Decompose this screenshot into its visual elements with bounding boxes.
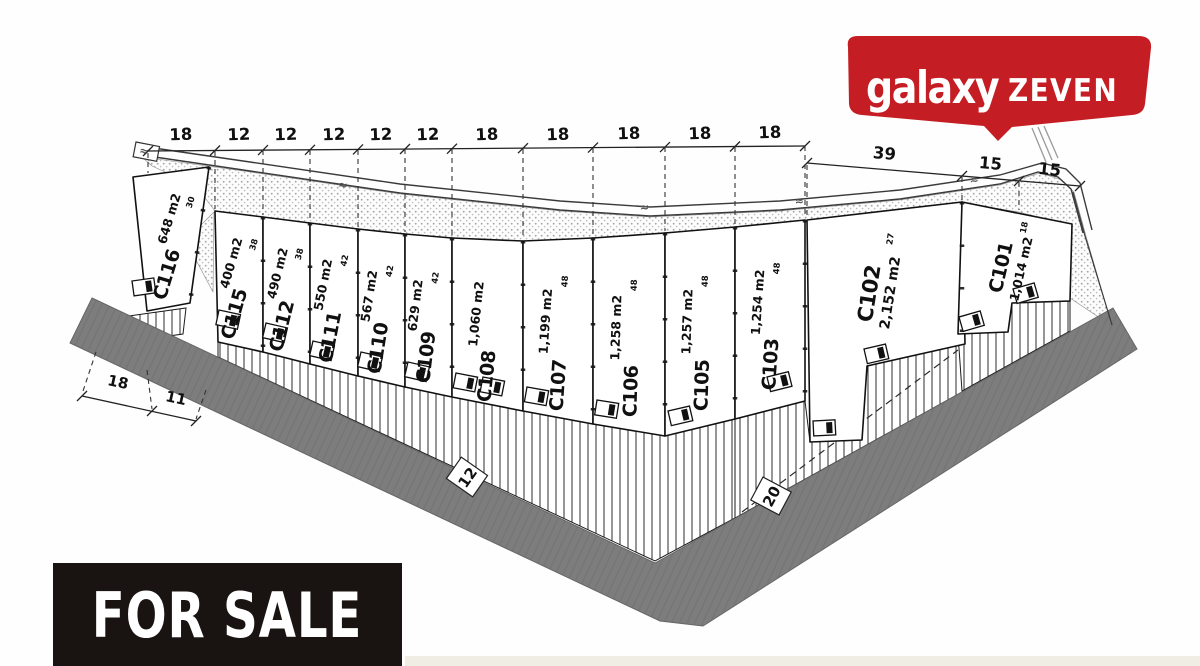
dim-label: 18 (169, 125, 193, 145)
plot-id: C103 (758, 338, 784, 391)
dim-label: 11 (164, 387, 188, 409)
plot-side-dim: 42 (385, 265, 397, 278)
water-squiggle-icon: ≈ (969, 173, 980, 187)
road-start-cap: ≈ (133, 142, 159, 161)
water-squiggle-icon: ≈ (640, 201, 650, 214)
plot-id: C106 (619, 365, 643, 418)
dim-label: 12 (322, 125, 346, 145)
logo-word-zeven: ZEVEN (1008, 73, 1118, 109)
logo-word-galaxy: galaxy (866, 61, 1000, 114)
dim-label: 18 (106, 371, 130, 393)
brand-logo: galaxy ZEVEN (848, 36, 1151, 162)
plot-side-dim: 48 (701, 275, 711, 287)
dim-label: 12 (274, 125, 298, 145)
plot-side-dim: 48 (560, 275, 571, 288)
dim-label: 18 (688, 124, 712, 144)
dim-label: 18 (617, 124, 641, 144)
plot-side-dim: 48 (772, 262, 783, 275)
plot-side-dim: 48 (630, 279, 640, 291)
dim-label: 12 (416, 125, 440, 145)
site-plan: C116 648 m2 30 C115 400 m2 38 C112 490 m… (0, 0, 1200, 666)
plot-area: 1,258 m2 (607, 295, 624, 361)
for-sale-label: FOR SALE (92, 580, 362, 652)
dim-label: 12 (227, 125, 251, 145)
dim-label: 18 (546, 125, 570, 145)
dim-label: 15 (978, 153, 1003, 174)
plot-area: 1,257 m2 (678, 289, 695, 355)
for-sale-banner: FOR SALE (53, 563, 402, 666)
bottom-cutoff-strip (405, 656, 1200, 666)
dim-label: 15 (1037, 159, 1062, 180)
flyer-page: C116 648 m2 30 C115 400 m2 38 C112 490 m… (0, 0, 1200, 666)
dim-label: 39 (872, 143, 897, 164)
water-squiggle-icon: ≈ (338, 178, 349, 192)
plot-side-dim: 42 (430, 271, 441, 284)
water-squiggle-icon: ≈ (794, 194, 804, 208)
dim-label: 18 (758, 123, 782, 143)
plot-id: C107 (546, 359, 572, 412)
dim-label: 12 (369, 125, 393, 145)
plot-id: C105 (690, 359, 714, 411)
top-dimension-labels: 18 12 12 12 12 12 18 18 18 18 18 39 15 1… (169, 123, 1062, 181)
dim-label: 18 (475, 125, 499, 145)
plot-side-dim: 27 (885, 232, 897, 245)
logo-strings (1032, 126, 1058, 162)
